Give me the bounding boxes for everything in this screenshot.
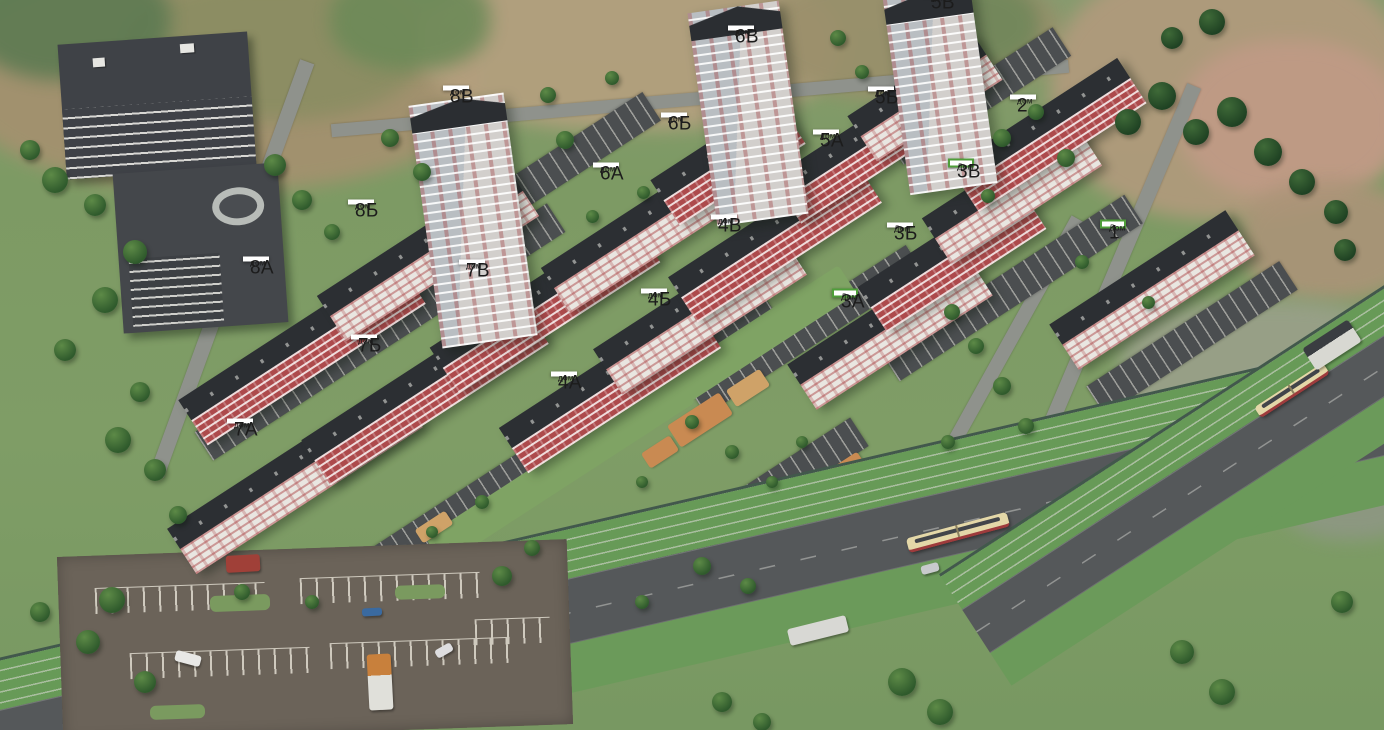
building-number-caption: дом: [450, 89, 466, 97]
building-number-caption: дом: [250, 260, 266, 268]
building-number-caption: Дом: [841, 294, 858, 302]
building-label-8Б[interactable]: 8Бдом: [348, 200, 374, 205]
building-label-7А[interactable]: 7Адом: [227, 419, 253, 424]
building-label-4А[interactable]: 4Адом: [551, 372, 577, 377]
building-label-1[interactable]: 1Дом: [1100, 220, 1126, 229]
building-label-7В[interactable]: 7Вдом: [459, 260, 485, 265]
building-label-3Б[interactable]: 3БДом: [887, 223, 913, 228]
building-number-caption: дом: [820, 133, 836, 141]
building-label-4Б[interactable]: 4Бдом: [641, 289, 667, 294]
building-label-6А[interactable]: 6Адом: [593, 163, 619, 168]
building-label-2[interactable]: 2дом: [1010, 95, 1036, 100]
building-number-caption: Дом: [894, 226, 911, 234]
building-number-caption: дом: [931, 0, 947, 3]
building-label-3А[interactable]: 3АДом: [832, 289, 858, 298]
building-number-caption: дом: [1017, 98, 1033, 106]
building-label-5А[interactable]: 5Адом: [813, 130, 839, 135]
labels-layer: 5Вдом6Вдом8Вдом5Бдом2дом6Бдом5Адом3ВДом6…: [0, 0, 1384, 730]
masterplan-render: 5Вдом6Вдом8Вдом5Бдом2дом6Бдом5Адом3ВДом6…: [0, 0, 1384, 730]
building-number-caption: Дом: [1109, 225, 1126, 233]
building-number-caption: дом: [875, 90, 891, 98]
building-number-caption: дом: [234, 422, 250, 430]
building-label-6Б[interactable]: 6Бдом: [661, 113, 687, 118]
building-number-caption: дом: [358, 338, 374, 346]
building-label-3В[interactable]: 3ВДом: [948, 159, 974, 168]
building-label-5Б[interactable]: 5Бдом: [868, 87, 894, 92]
building-label-8В[interactable]: 8Вдом: [443, 86, 469, 91]
building-number-caption: дом: [735, 29, 751, 37]
building-number-caption: Дом: [957, 164, 974, 172]
building-number-caption: дом: [648, 292, 664, 300]
building-number-caption: дом: [558, 375, 574, 383]
building-number-caption: дом: [355, 203, 371, 211]
building-number-caption: дом: [466, 263, 482, 271]
building-label-8А[interactable]: 8Адом: [243, 257, 269, 262]
building-label-7Б[interactable]: 7Бдом: [351, 335, 377, 340]
building-number-caption: дом: [600, 166, 616, 174]
building-number-caption: дом: [668, 116, 684, 124]
building-number-caption: дом: [718, 218, 734, 226]
building-label-6В[interactable]: 6Вдом: [728, 26, 754, 31]
building-label-4В[interactable]: 4Вдом: [711, 215, 737, 220]
